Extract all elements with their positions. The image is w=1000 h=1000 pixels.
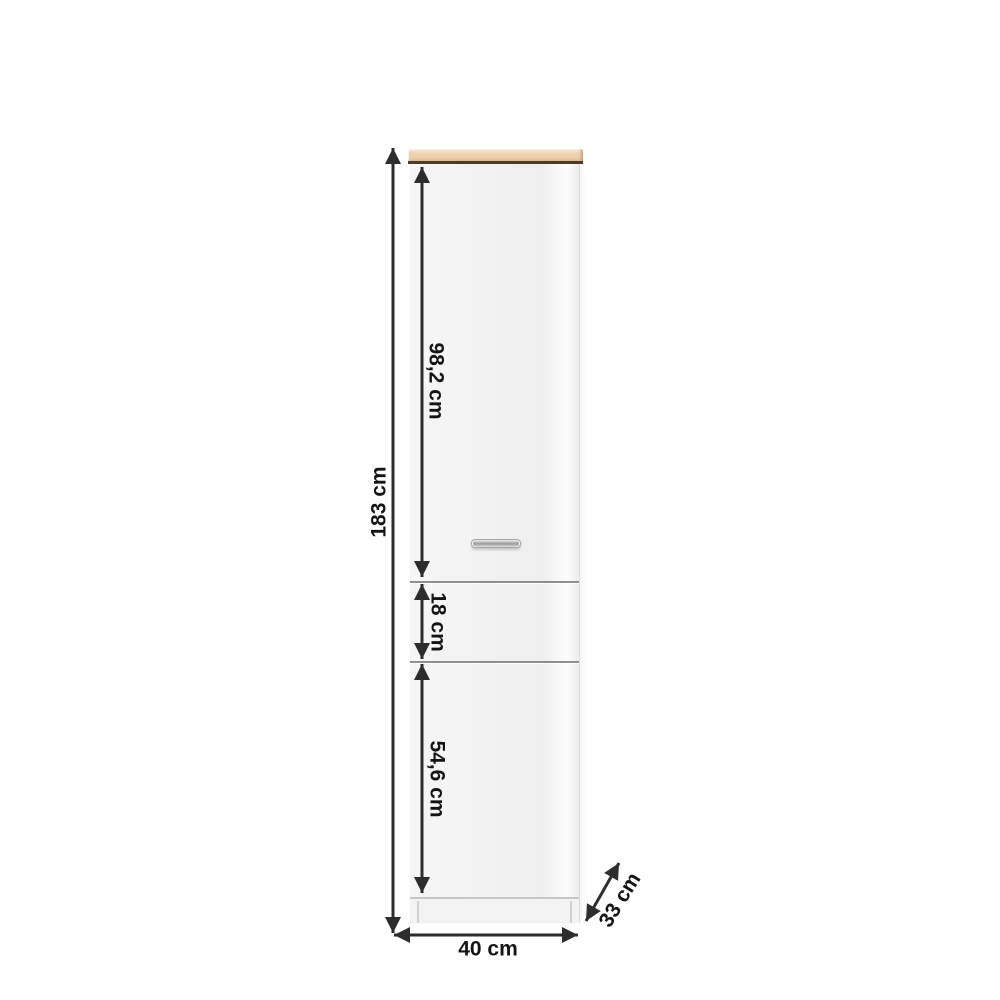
bottom-section-dimension-label: 54,6 cm [427,740,448,817]
height-dimension-label: 183 cm [369,466,390,537]
width-dimension-label: 40 cm [458,939,518,960]
drawer-dimension-label: 18 cm [428,592,449,652]
product-dimension-diagram: 183 cm 98,2 cm 18 cm 54,6 cm 40 cm 33 cm [0,0,1000,1000]
top-section-dimension-label: 98,2 cm [426,342,447,419]
dimension-arrows [0,0,1000,1000]
